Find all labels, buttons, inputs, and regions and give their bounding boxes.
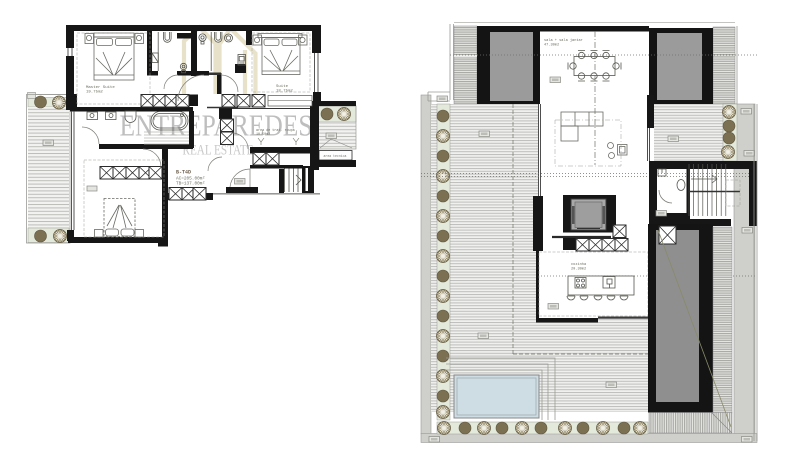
svg-text:area tecnica: area tecnica [324,154,347,158]
svg-text:TB=137.00m²: TB=137.00m² [176,181,205,187]
svg-text:B-T4D: B-T4D [176,170,191,176]
svg-text:18.75m2: 18.75m2 [276,90,293,94]
svg-text:47.30m2: 47.30m2 [544,44,559,48]
svg-text:sala + sala jantar: sala + sala jantar [544,38,583,43]
svg-text:20.30m2: 20.30m2 [571,268,586,272]
svg-text:10.50m2: 10.50m2 [256,133,270,137]
svg-text:ENTREPAREDES: ENTREPAREDES [120,108,313,143]
svg-text:19.75m2: 19.75m2 [86,91,103,95]
svg-text:Master Suite: Master Suite [86,85,115,90]
svg-text:cozinha: cozinha [571,262,587,267]
svg-text:Suite: Suite [276,84,289,89]
